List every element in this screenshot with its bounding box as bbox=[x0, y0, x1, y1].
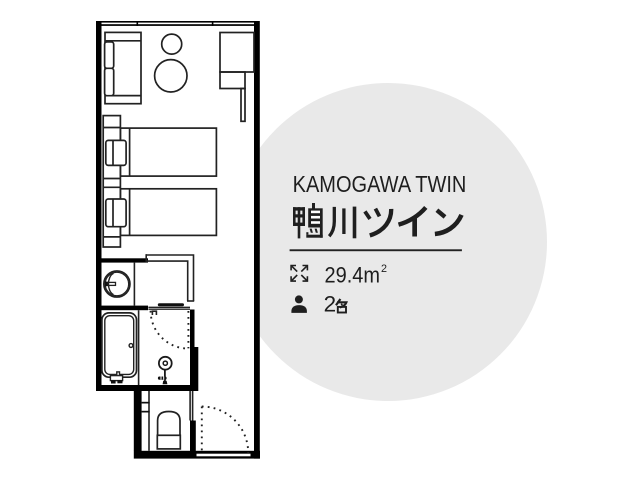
svg-text:29.4m: 29.4m bbox=[325, 262, 381, 287]
svg-text:2: 2 bbox=[381, 263, 387, 275]
svg-text:KAMOGAWA TWIN: KAMOGAWA TWIN bbox=[293, 171, 467, 197]
svg-text:2: 2 bbox=[324, 291, 337, 316]
